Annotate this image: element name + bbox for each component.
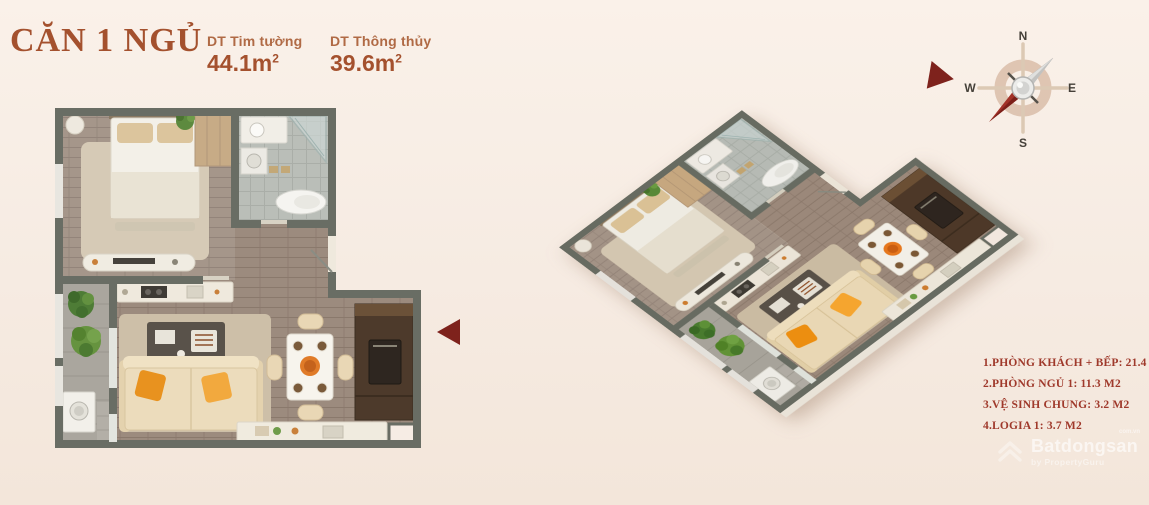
floor-plan-poster: CĂN 1 NGỦ DT Tim tường 44.1m2 DT Thông t…: [0, 0, 1149, 505]
compass-label-east: E: [1068, 81, 1076, 95]
compass-icon: N S W E: [958, 24, 1088, 154]
metric-label: DT Thông thủy: [330, 33, 431, 49]
direction-arrow-left-icon: [437, 319, 460, 345]
batdongsan-logo-icon: [995, 437, 1025, 465]
compass-label-south: S: [1019, 136, 1027, 150]
direction-arrow-right-icon: [927, 61, 956, 93]
watermark-tagline: by PropertyGuru: [1031, 457, 1138, 467]
metric-value: 44.1m2: [207, 50, 302, 77]
watermark-brand: Batdongsan: [1031, 437, 1138, 455]
legend-item: 3.VỆ SINH CHUNG: 3.2 M2: [983, 399, 1149, 411]
compass-label-north: N: [1019, 29, 1028, 43]
metric-wall-area: DT Tim tường 44.1m2: [207, 33, 302, 77]
metric-sup: 2: [395, 51, 402, 65]
metric-number: 39.6m: [330, 50, 395, 76]
compass-hub-highlight: [1017, 82, 1023, 88]
watermark-domain: com.vn: [1119, 429, 1140, 435]
watermark: com.vn Batdongsan by PropertyGuru: [995, 437, 1138, 467]
page-title: CĂN 1 NGỦ: [10, 22, 202, 60]
metric-value: 39.6m2: [330, 50, 431, 77]
metric-label: DT Tim tường: [207, 33, 302, 49]
floor-plan-graphic: [55, 108, 425, 448]
metric-sup: 2: [272, 51, 279, 65]
floor-plan-3d: [559, 67, 1021, 413]
metric-number: 44.1m: [207, 50, 272, 76]
legend-item: 2.PHÒNG NGỦ 1: 11.3 M2: [983, 378, 1149, 390]
watermark-text: com.vn Batdongsan by PropertyGuru: [1031, 437, 1138, 467]
floor-plan-graphic: [559, 67, 1021, 413]
floor-plan-2d: [55, 108, 425, 448]
metric-carpet-area: DT Thông thủy 39.6m2: [330, 33, 431, 77]
compass-label-west: W: [964, 81, 976, 95]
legend-item: 1.PHÒNG KHÁCH + BẾP: 21.4 M2: [983, 357, 1149, 369]
